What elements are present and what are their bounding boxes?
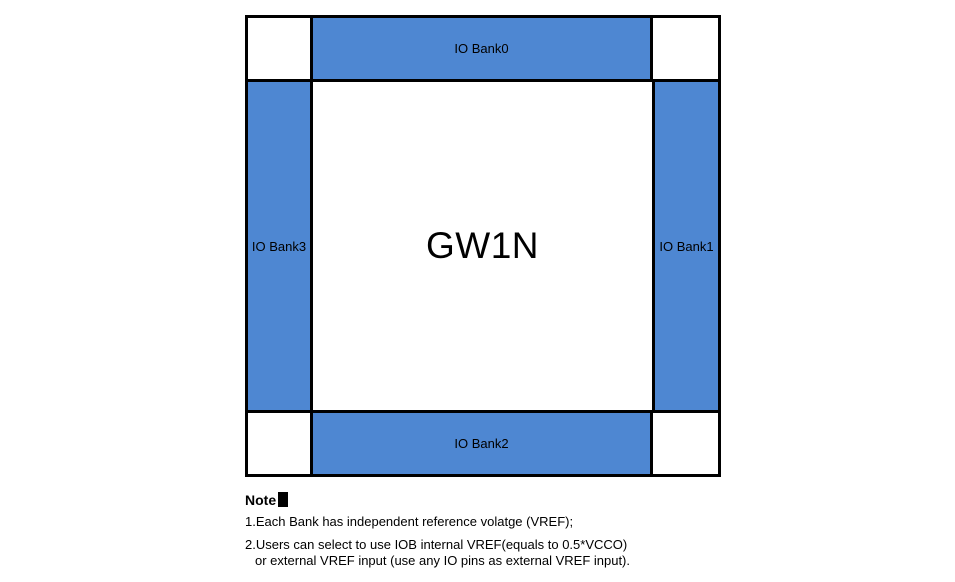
figure-io-bank-diagram: IO Bank0 IO Bank3 IO Bank1 IO Bank2 GW1N… bbox=[0, 0, 955, 582]
note-block: Note 1.Each Bank has independent referen… bbox=[245, 492, 715, 569]
io-bank1-label: IO Bank1 bbox=[659, 239, 713, 254]
chip-name-label: GW1N bbox=[426, 225, 539, 267]
io-bank3-region: IO Bank3 bbox=[245, 79, 313, 413]
note-item-2-continued: or external VREF input (use any IO pins … bbox=[245, 553, 715, 569]
note-item-2: 2.Users can select to use IOB internal V… bbox=[245, 537, 715, 553]
io-bank2-label: IO Bank2 bbox=[454, 436, 508, 451]
io-bank0-label: IO Bank0 bbox=[454, 41, 508, 56]
io-bank2-region: IO Bank2 bbox=[310, 410, 653, 477]
io-bank3-label: IO Bank3 bbox=[252, 239, 306, 254]
io-bank0-region: IO Bank0 bbox=[310, 15, 653, 82]
missing-glyph-square-icon bbox=[278, 492, 288, 507]
io-bank1-region: IO Bank1 bbox=[652, 79, 721, 413]
note-heading: Note bbox=[245, 492, 715, 508]
chip-name: GW1N bbox=[313, 82, 652, 410]
note-heading-label: Note bbox=[245, 492, 276, 508]
note-item-1: 1.Each Bank has independent reference vo… bbox=[245, 514, 715, 530]
